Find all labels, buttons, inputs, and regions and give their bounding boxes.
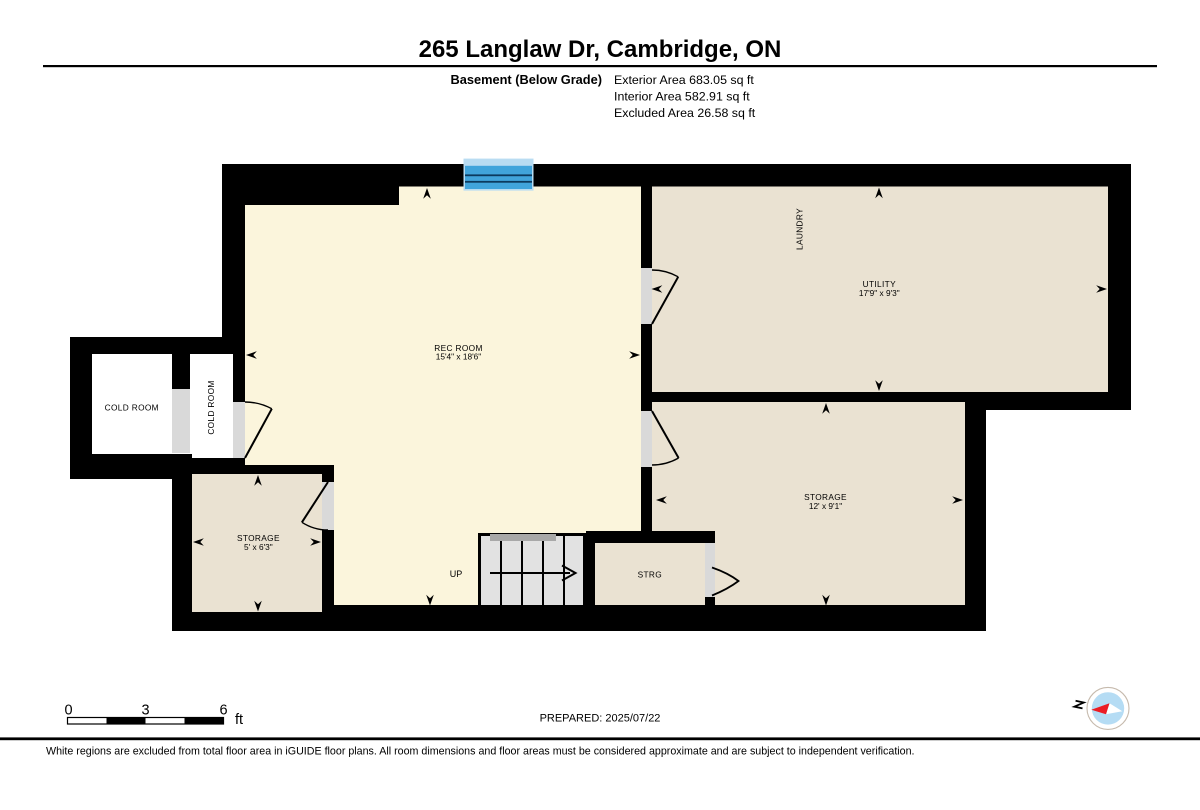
svg-text:6: 6 [219, 703, 227, 719]
svg-text:COLD ROOM: COLD ROOM [105, 403, 159, 413]
svg-text:Exterior Area 683.05 sq ft: Exterior Area 683.05 sq ft [614, 73, 754, 87]
svg-text:COLD ROOM: COLD ROOM [206, 380, 216, 434]
svg-text:Excluded Area 26.58 sq ft: Excluded Area 26.58 sq ft [614, 106, 756, 120]
svg-text:3: 3 [141, 703, 149, 719]
svg-text:LAUNDRY: LAUNDRY [795, 208, 805, 250]
svg-text:0: 0 [64, 703, 72, 719]
svg-text:15'4" x 18'6": 15'4" x 18'6" [436, 351, 482, 361]
svg-text:Interior Area 582.91 sq ft: Interior Area 582.91 sq ft [614, 89, 750, 103]
svg-text:White regions are excluded fro: White regions are excluded from total fl… [46, 746, 915, 758]
svg-text:PREPARED: 2025/07/22: PREPARED: 2025/07/22 [540, 712, 661, 724]
svg-text:Basement (Below Grade): Basement (Below Grade) [451, 72, 602, 87]
svg-text:12' x 9'1": 12' x 9'1" [809, 501, 842, 511]
svg-text:STRG: STRG [638, 569, 662, 579]
svg-text:ft: ft [235, 712, 243, 728]
svg-text:5' x 6'3": 5' x 6'3" [244, 542, 273, 552]
svg-text:UP: UP [450, 569, 463, 579]
svg-text:265 Langlaw Dr, Cambridge, ON: 265 Langlaw Dr, Cambridge, ON [419, 36, 782, 63]
svg-text:17'9" x 9'3": 17'9" x 9'3" [859, 288, 900, 298]
